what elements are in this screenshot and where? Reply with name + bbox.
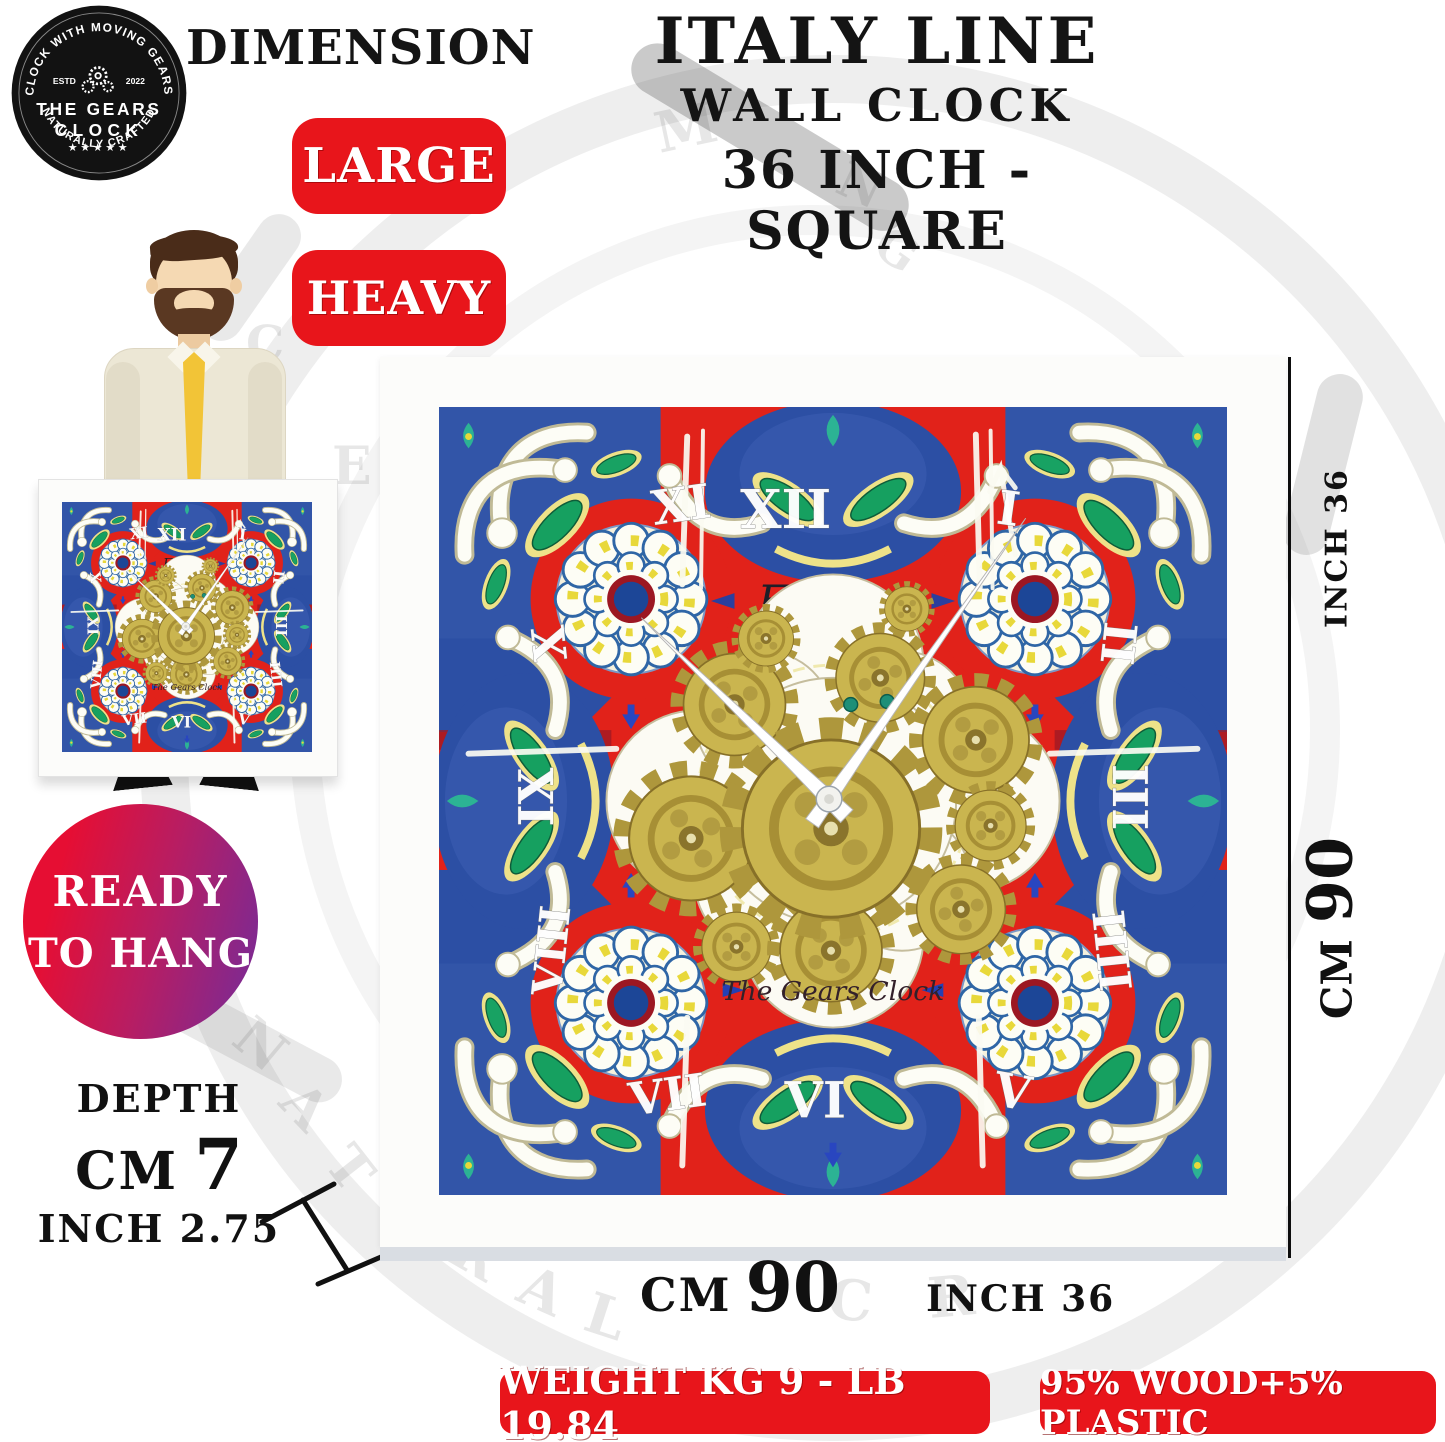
title-line-2: WALL CLOCK bbox=[612, 79, 1142, 132]
title-line-1: ITALY LINE bbox=[612, 8, 1142, 75]
height-measure-line bbox=[1288, 357, 1291, 1258]
man-mustache bbox=[172, 308, 216, 320]
small-clock-preview bbox=[38, 479, 338, 777]
logo-estd: ESTD bbox=[53, 76, 76, 86]
right-cm-value: 90 bbox=[1294, 837, 1367, 923]
logo-name-line1: THE GEARS bbox=[36, 99, 161, 119]
depth-cm-unit: CM bbox=[75, 1141, 178, 1202]
right-inch-label: INCH 36 bbox=[1320, 468, 1355, 628]
bottom-cm-value: 90 bbox=[746, 1248, 841, 1328]
ready-line-2: TO HANG bbox=[28, 930, 253, 977]
ready-to-hang-badge: READY TO HANG bbox=[23, 804, 258, 1039]
bottom-inch-label: INCH 36 bbox=[926, 1278, 1115, 1320]
product-title: ITALY LINE WALL CLOCK 36 INCH - SQUARE bbox=[612, 8, 1142, 262]
man-ear bbox=[230, 278, 242, 294]
watermark-letter: L bbox=[577, 1280, 635, 1355]
main-clock bbox=[380, 357, 1286, 1247]
watermark-letter: N bbox=[221, 1004, 300, 1085]
title-line-3: 36 INCH - SQUARE bbox=[612, 140, 1142, 262]
depth-cm-value: 7 bbox=[194, 1123, 243, 1206]
logo-stars: ★★★★★ bbox=[68, 142, 131, 154]
logo-name-line2: CLOCK bbox=[55, 120, 144, 140]
material-badge: 95% WOOD+5% PLASTIC bbox=[1040, 1371, 1436, 1434]
heavy-badge: HEAVY bbox=[292, 250, 506, 346]
ready-line-1: READY bbox=[53, 867, 229, 916]
brand-logo: CLOCK WITH MOVING GEARS NATURALLY CRAFTE… bbox=[8, 2, 190, 184]
right-cm-label: CM90 bbox=[1294, 837, 1367, 1019]
depth-inch-unit: INCH bbox=[38, 1206, 165, 1251]
depth-label: DEPTH bbox=[28, 1076, 290, 1121]
bottom-cm-unit: CM bbox=[640, 1268, 732, 1322]
right-cm-unit: CM bbox=[1313, 939, 1362, 1019]
large-badge: LARGE bbox=[292, 118, 506, 214]
bottom-size-row: CM 90 INCH 36 bbox=[640, 1248, 1115, 1328]
weight-badge: WEIGHT KG 9 - LB 19.84 bbox=[500, 1371, 990, 1434]
logo-year: 2022 bbox=[126, 76, 145, 86]
depth-indicator bbox=[250, 1172, 395, 1297]
watermark-letter: A bbox=[508, 1252, 575, 1330]
dimension-heading: DIMENSION bbox=[186, 20, 535, 76]
product-image: M N G E C N A T R A L C R bbox=[0, 0, 1445, 1442]
